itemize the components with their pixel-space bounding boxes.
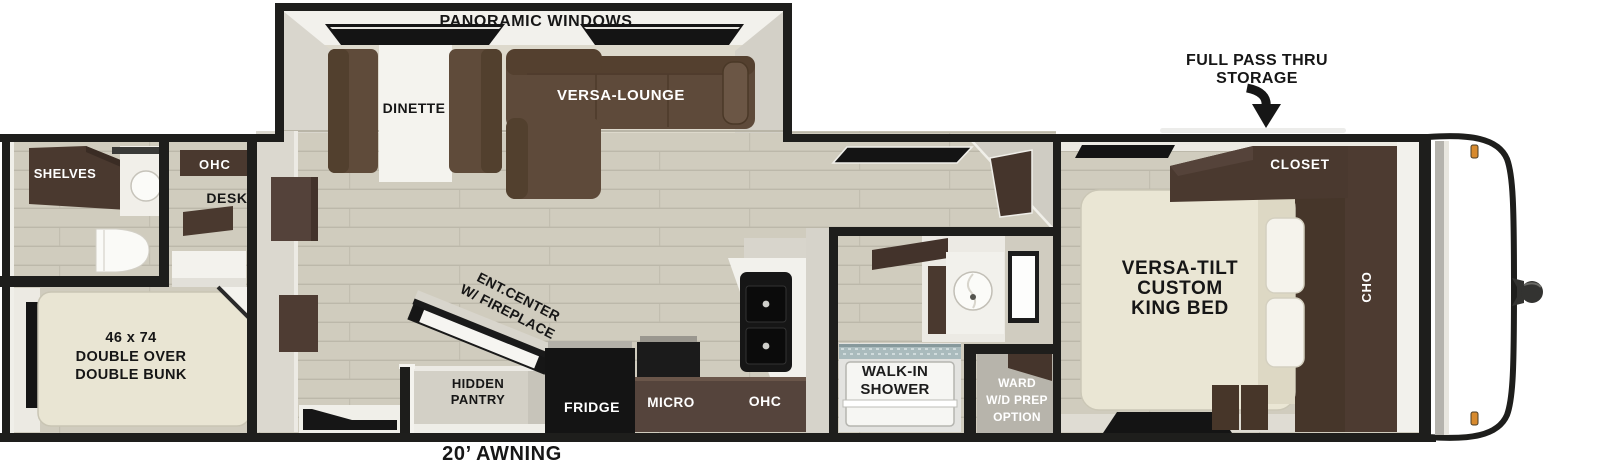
svg-text:MICRO: MICRO <box>647 395 695 410</box>
svg-text:SHELVES: SHELVES <box>34 166 97 181</box>
svg-text:OHC: OHC <box>749 393 782 409</box>
svg-text:DOUBLE BUNK: DOUBLE BUNK <box>75 367 187 383</box>
svg-text:KING BED: KING BED <box>1131 298 1229 319</box>
svg-text:WALK-IN: WALK-IN <box>862 363 928 380</box>
svg-text:CUSTOM: CUSTOM <box>1137 278 1223 299</box>
svg-text:OHC: OHC <box>199 157 231 172</box>
svg-text:W/D PREP: W/D PREP <box>986 393 1048 407</box>
svg-text:PANORAMIC WINDOWS: PANORAMIC WINDOWS <box>440 13 633 30</box>
svg-text:DESK: DESK <box>206 190 247 206</box>
svg-text:STORAGE: STORAGE <box>1216 70 1298 87</box>
svg-text:SHOWER: SHOWER <box>860 381 929 398</box>
svg-text:VERSA-TILT: VERSA-TILT <box>1122 258 1238 279</box>
svg-text:OPTION: OPTION <box>993 410 1041 424</box>
svg-text:FULL PASS THRU: FULL PASS THRU <box>1186 52 1328 69</box>
svg-text:DOUBLE OVER: DOUBLE OVER <box>76 349 187 365</box>
svg-text:CHO: CHO <box>1359 271 1374 302</box>
svg-text:PANTRY: PANTRY <box>451 392 505 407</box>
svg-text:VERSA-LOUNGE: VERSA-LOUNGE <box>557 87 685 104</box>
svg-text:DINETTE: DINETTE <box>383 100 446 116</box>
svg-text:HIDDEN: HIDDEN <box>452 376 504 391</box>
svg-text:46 x 74: 46 x 74 <box>105 330 156 346</box>
svg-text:FRIDGE: FRIDGE <box>564 399 620 415</box>
svg-text:CLOSET: CLOSET <box>1270 157 1330 172</box>
svg-text:20’ AWNING: 20’ AWNING <box>442 443 562 461</box>
svg-text:WARD: WARD <box>998 376 1036 390</box>
